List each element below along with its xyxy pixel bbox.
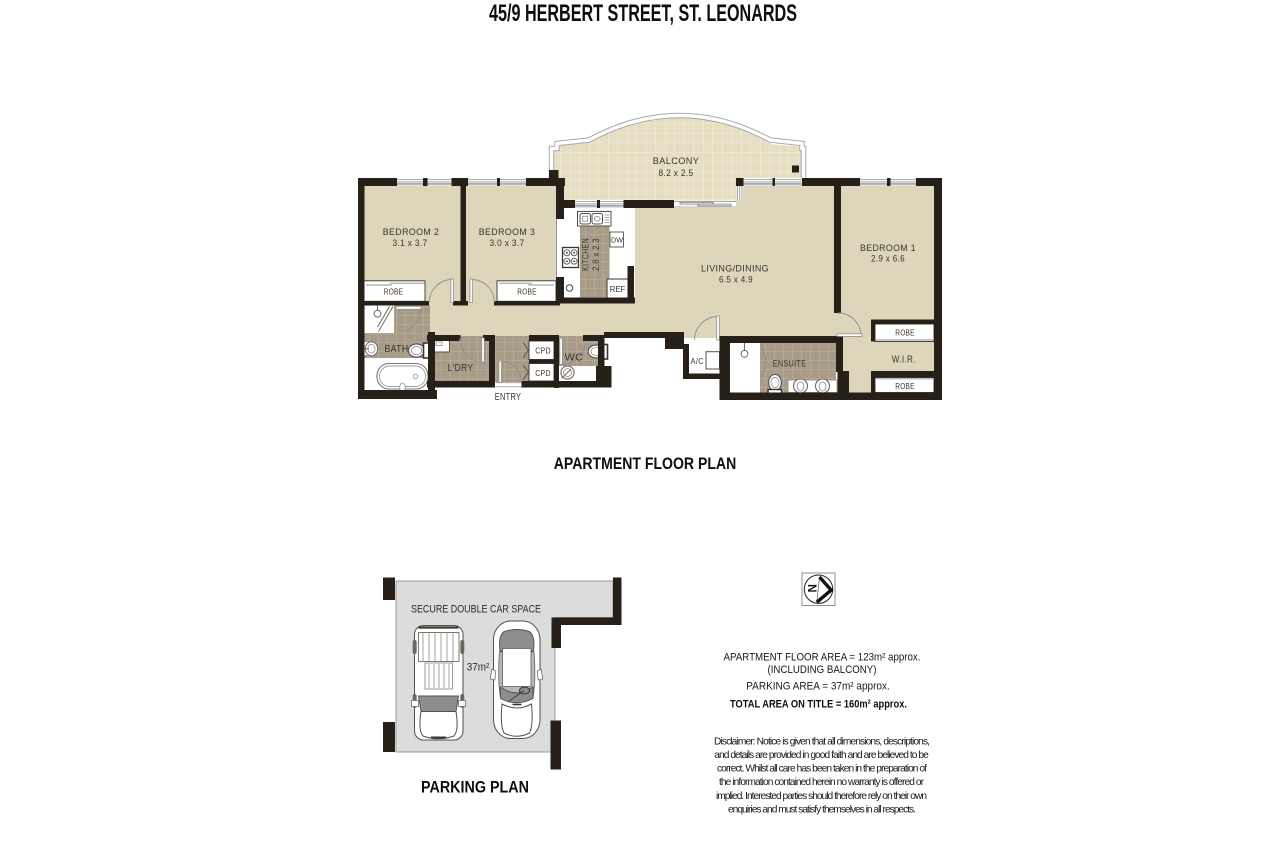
svg-text:PARKING AREA = 37m² approx.: PARKING AREA = 37m² approx. xyxy=(746,681,890,693)
svg-text:6.5 x 4.9: 6.5 x 4.9 xyxy=(719,274,753,285)
svg-text:BATH: BATH xyxy=(385,344,409,355)
svg-text:implied. Interested parties sh: implied. Interested parties should there… xyxy=(716,791,927,802)
svg-text:37m²: 37m² xyxy=(467,661,490,673)
svg-text:3.0 x 3.7: 3.0 x 3.7 xyxy=(490,238,525,249)
svg-text:enquiries and must satisfy the: enquiries and must satisfy themselves in… xyxy=(728,804,916,815)
svg-text:(INCLUDING BALCONY): (INCLUDING BALCONY) xyxy=(768,664,877,676)
svg-text:Disclaimer: Notice is given th: Disclaimer: Notice is given that all dim… xyxy=(714,736,930,747)
svg-text:CPD: CPD xyxy=(535,346,551,355)
svg-text:DW: DW xyxy=(611,235,623,244)
svg-text:BEDROOM 3: BEDROOM 3 xyxy=(479,227,536,238)
svg-text:ENSUITE: ENSUITE xyxy=(773,358,807,369)
svg-text:KITCHEN: KITCHEN xyxy=(581,238,592,271)
svg-text:ENTRY: ENTRY xyxy=(495,392,522,403)
svg-text:ROBE: ROBE xyxy=(895,382,915,391)
svg-text:LIVING/DINING: LIVING/DINING xyxy=(701,263,769,274)
svg-text:2.9 x 6.6: 2.9 x 6.6 xyxy=(871,253,905,264)
svg-text:and details are provided in go: and details are provided in good faith a… xyxy=(714,750,929,761)
svg-text:A/C: A/C xyxy=(691,356,705,366)
svg-text:correct. Whilst all care has b: correct. Whilst all care has been taken … xyxy=(717,764,927,775)
svg-text:APARTMENT FLOOR AREA = 123m²: APARTMENT FLOOR AREA = 123m² approx. xyxy=(724,652,921,664)
svg-text:TOTAL AREA ON TITLE = 160m²: TOTAL AREA ON TITLE = 160m² approx. xyxy=(730,699,907,711)
svg-text:BEDROOM 2: BEDROOM 2 xyxy=(383,227,440,238)
svg-text:N: N xyxy=(805,584,817,592)
svg-text:SECURE DOUBLE CAR SPACE: SECURE DOUBLE CAR SPACE xyxy=(411,604,541,616)
svg-text:ROBE: ROBE xyxy=(517,288,537,297)
svg-text:45/9 HERBERT STREET, ST. LEONA: 45/9 HERBERT STREET, ST. LEONARDS xyxy=(489,0,797,27)
svg-text:PARKING PLAN: PARKING PLAN xyxy=(421,779,529,797)
svg-text:L'DRY: L'DRY xyxy=(448,363,474,374)
svg-text:WC: WC xyxy=(565,353,584,364)
svg-text:3.1 x 3.7: 3.1 x 3.7 xyxy=(393,238,428,249)
svg-text:the information contained here: the information contained herein no warr… xyxy=(719,777,925,788)
svg-text:BEDROOM 1: BEDROOM 1 xyxy=(860,243,916,254)
svg-text:APARTMENT FLOOR PLAN: APARTMENT FLOOR PLAN xyxy=(554,455,737,473)
svg-text:CPD: CPD xyxy=(535,369,551,378)
svg-text:2.8 x 2.3: 2.8 x 2.3 xyxy=(591,238,602,271)
svg-text:BALCONY: BALCONY xyxy=(653,156,700,167)
svg-text:ROBE: ROBE xyxy=(384,288,404,297)
svg-text:REF: REF xyxy=(610,285,626,294)
svg-text:8.2 x 2.5: 8.2 x 2.5 xyxy=(659,168,694,179)
svg-text:ROBE: ROBE xyxy=(895,328,915,337)
svg-text:W.I.R.: W.I.R. xyxy=(892,354,916,365)
